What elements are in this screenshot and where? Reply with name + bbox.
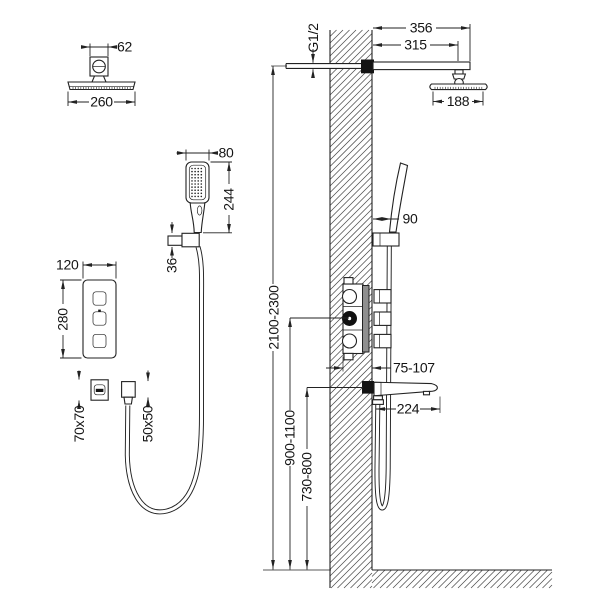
- dim-height-valve: 900-1100: [282, 410, 298, 466]
- valve-knob-side: [374, 334, 391, 347]
- floor-section-hatching: [372, 570, 552, 588]
- dim-arm-reach-center: 315: [404, 37, 427, 53]
- wall-section: [263, 30, 552, 588]
- dim-spout-reach: 224: [397, 401, 420, 417]
- dim-head-depth: 188: [447, 93, 470, 109]
- valve-knob-side: [374, 312, 391, 325]
- valve-front-view: [83, 280, 116, 358]
- dim-hand-head-width: 80: [219, 145, 234, 161]
- rain-head-side-view: [286, 60, 487, 90]
- dim-arm-reach-total: 356: [410, 20, 433, 36]
- dim-hand-wall-offset: 90: [403, 211, 418, 227]
- hand-shower-front-view: [127, 162, 209, 512]
- shower-installation-diagram: 62 260 80 244 36 120 280 70x70 50x50 356…: [0, 0, 600, 600]
- dim-hose-outlet-size: 50x50: [140, 405, 156, 442]
- spout-aerator: [424, 391, 430, 394]
- dim-rain-mount-width: 62: [117, 39, 132, 55]
- dim-plate-height: 280: [55, 308, 71, 331]
- hose-outlet: [122, 382, 136, 398]
- dim-inlet-thread: G1/2: [305, 23, 321, 53]
- dim-holder-height: 36: [164, 258, 180, 273]
- diagram-canvas: 62 260 80 244 36 120 280 70x70 50x50 356…: [0, 0, 600, 600]
- holder-wall-plate: [168, 236, 182, 245]
- valve-trim-plate-side: [363, 286, 370, 353]
- hand-shower-holder: [182, 233, 199, 247]
- spout-escutcheon-front-view: [91, 380, 108, 400]
- dim-height-rain-arm: 2100-2300: [266, 285, 282, 350]
- hose-outlet-side: [373, 400, 384, 405]
- dim-height-spout: 730-800: [299, 452, 315, 502]
- hose-outlet-front-view: [122, 382, 136, 404]
- dim-plate-width: 120: [56, 257, 79, 273]
- valve-side-view: [342, 278, 391, 360]
- hand-shower-holder-side: [373, 233, 399, 246]
- dim-rain-head-width: 260: [90, 94, 113, 110]
- shower-arm: [373, 62, 470, 70]
- spout-wall-flange: [362, 381, 374, 394]
- shower-hose-front: [127, 247, 201, 512]
- dimension-labels: 62 260 80 244 36 120 280 70x70 50x50 356…: [55, 20, 470, 502]
- rain-head-front-view: [68, 57, 135, 90]
- dim-hand-overall-height: 244: [221, 188, 237, 211]
- valve-knob-side: [374, 290, 391, 303]
- dim-spout-escutcheon-size: 70x70: [71, 405, 87, 442]
- dim-valve-recess-depth: 75-107: [393, 360, 435, 376]
- arm-wall-flange: [361, 60, 374, 74]
